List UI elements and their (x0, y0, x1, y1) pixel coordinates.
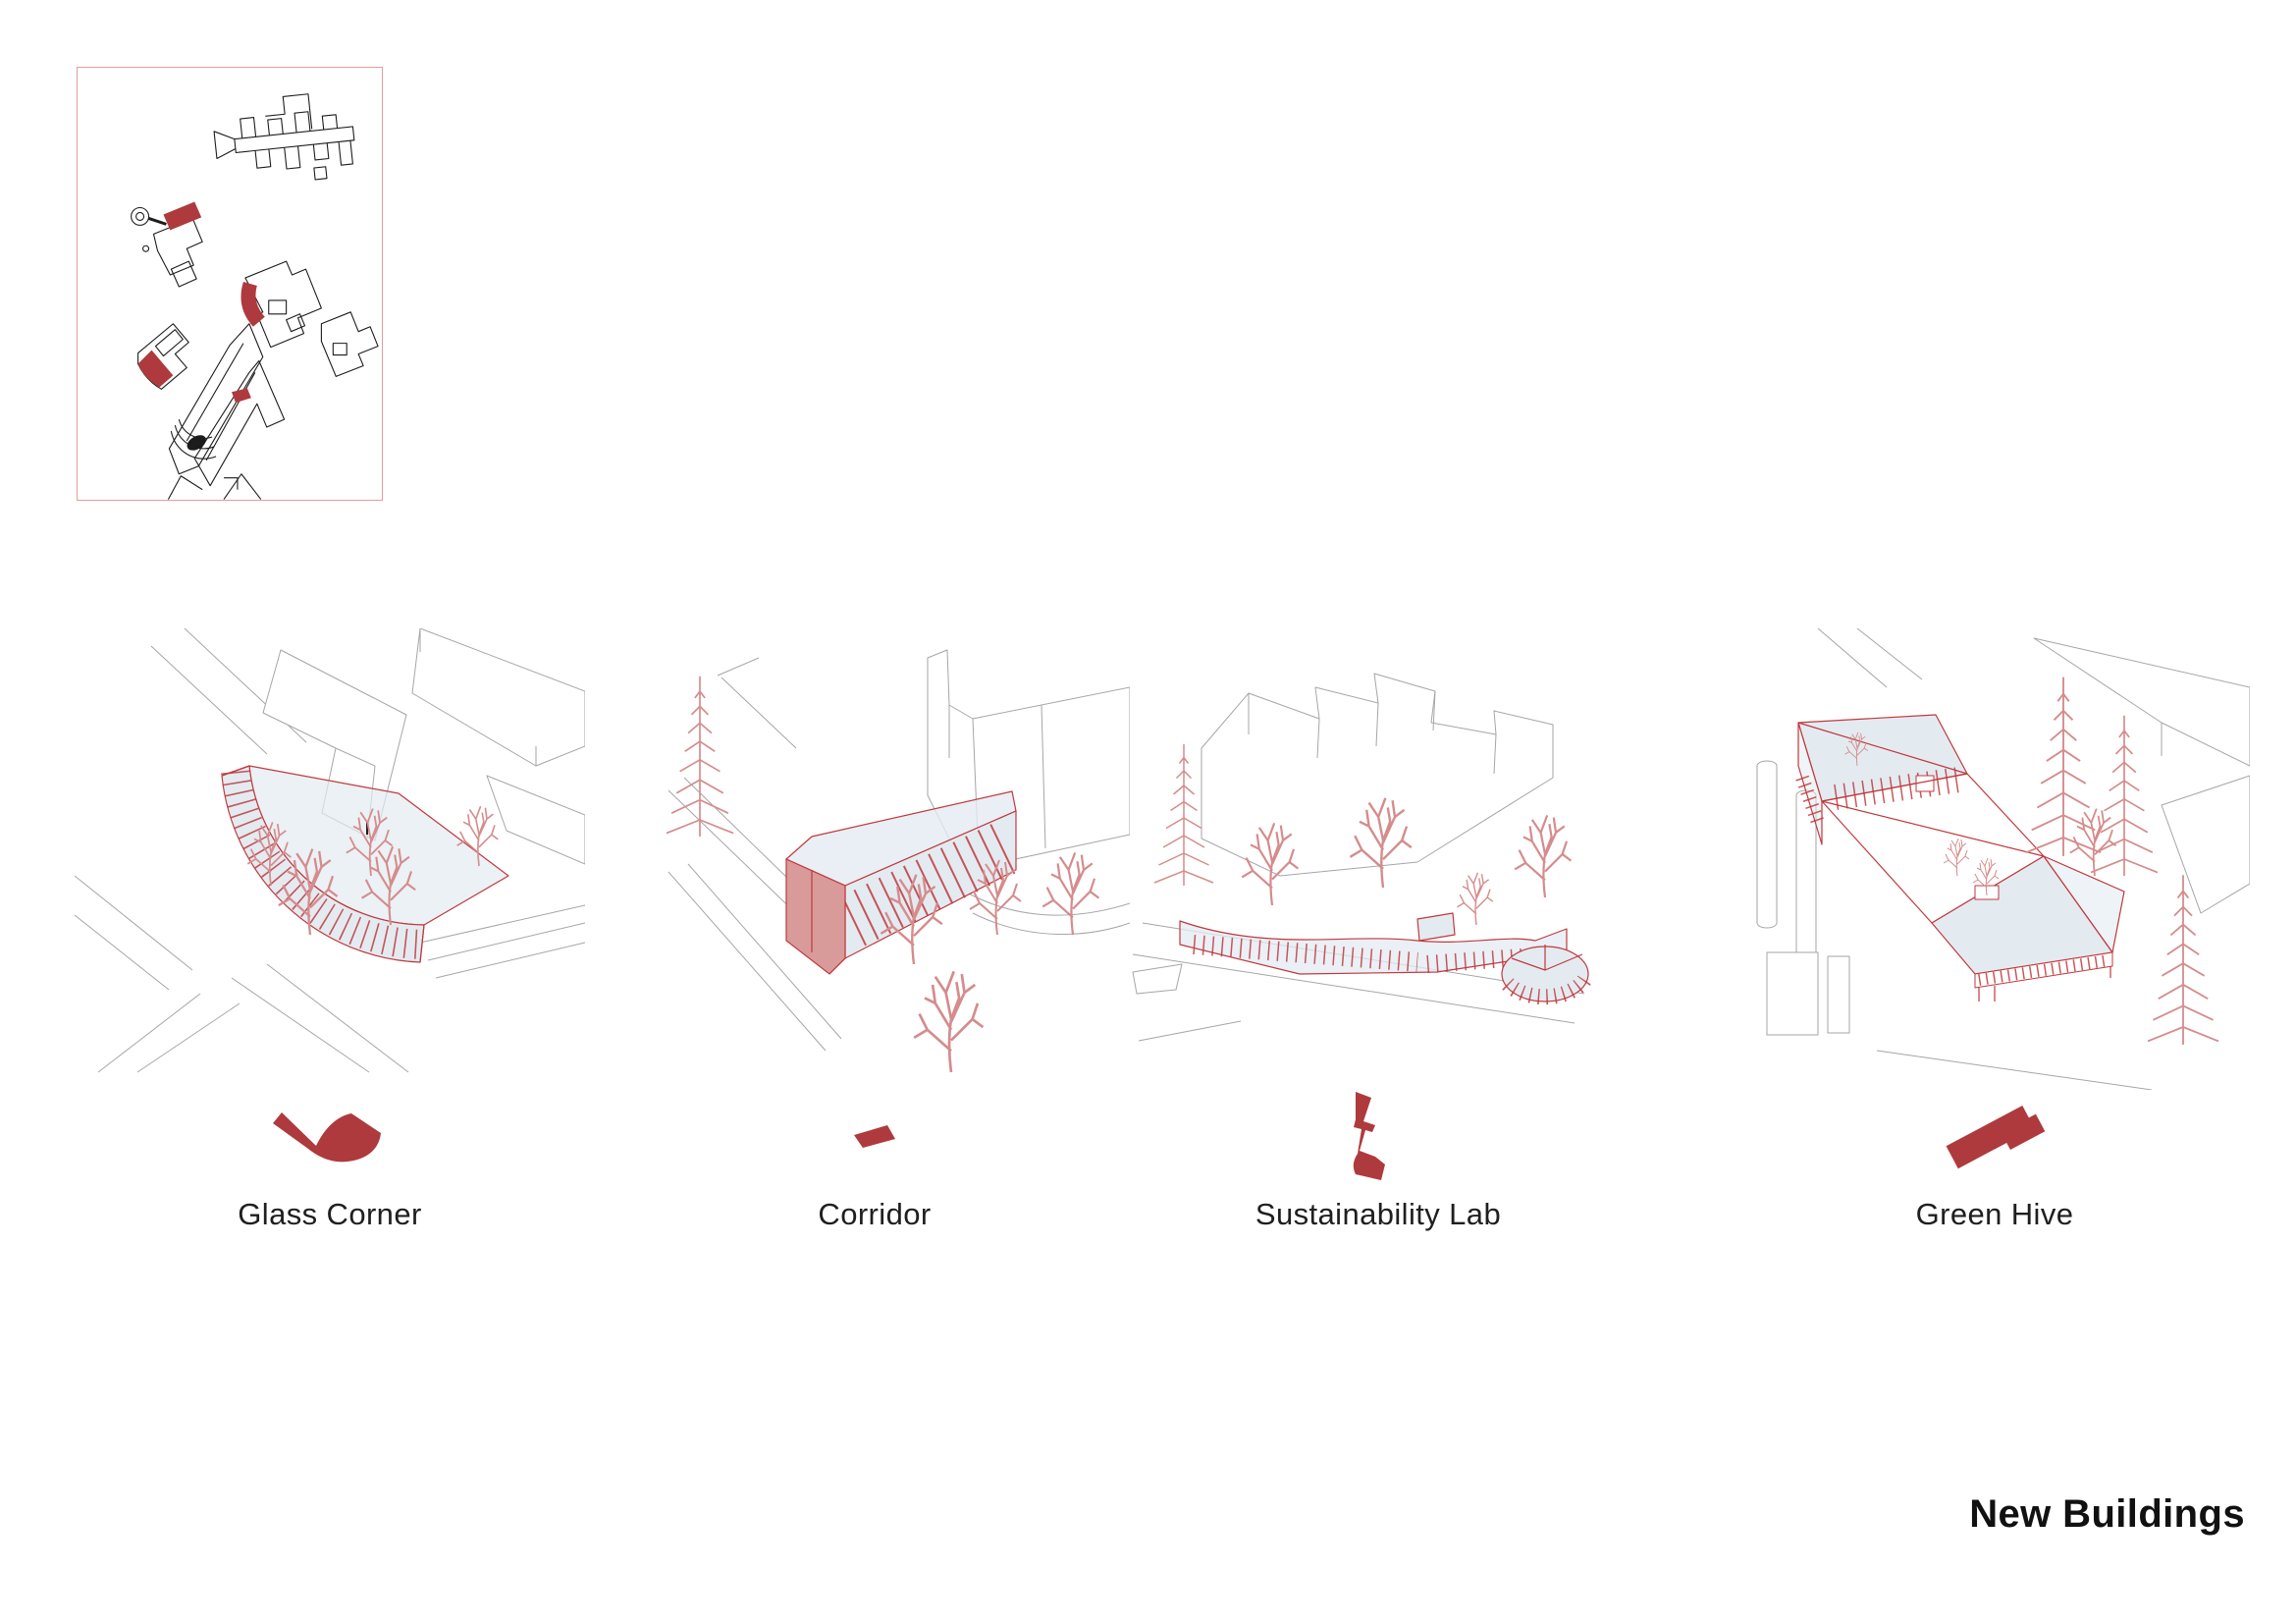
panel-green-hive: Green Hive (1739, 628, 2250, 1276)
panel-sustainability-lab: Sustainability Lab (1123, 628, 1633, 1276)
corridor-plan-icon (852, 1123, 897, 1150)
axon-drawing-glass-corner (75, 628, 585, 1090)
context-lines (1757, 628, 2250, 1090)
panel-glass-corner: Glass Corner (75, 628, 585, 1276)
panel-label: Corridor (619, 1197, 1130, 1232)
panel-corridor: Corridor (619, 628, 1130, 1276)
proposed-building (1180, 913, 1588, 1001)
panel-label: Sustainability Lab (1123, 1197, 1633, 1232)
axon-drawing-green-hive (1739, 628, 2250, 1090)
presentation-board: Glass Corner (0, 0, 2296, 1624)
green-hive-plan-icon (1938, 1095, 2052, 1179)
page-title: New Buildings (1969, 1492, 2245, 1537)
axon-drawing-corridor (619, 628, 1130, 1090)
site-plan-drawing (78, 68, 382, 500)
site-plan-frame (77, 67, 383, 501)
new-building-marks (138, 202, 265, 404)
glass-corner-plan-icon (271, 1110, 389, 1164)
panel-label: Glass Corner (75, 1197, 585, 1232)
axon-drawing-sustainability-lab (1123, 628, 1633, 1090)
panel-label: Green Hive (1739, 1197, 2250, 1232)
sustainability-lab-plan-icon (1346, 1092, 1411, 1182)
